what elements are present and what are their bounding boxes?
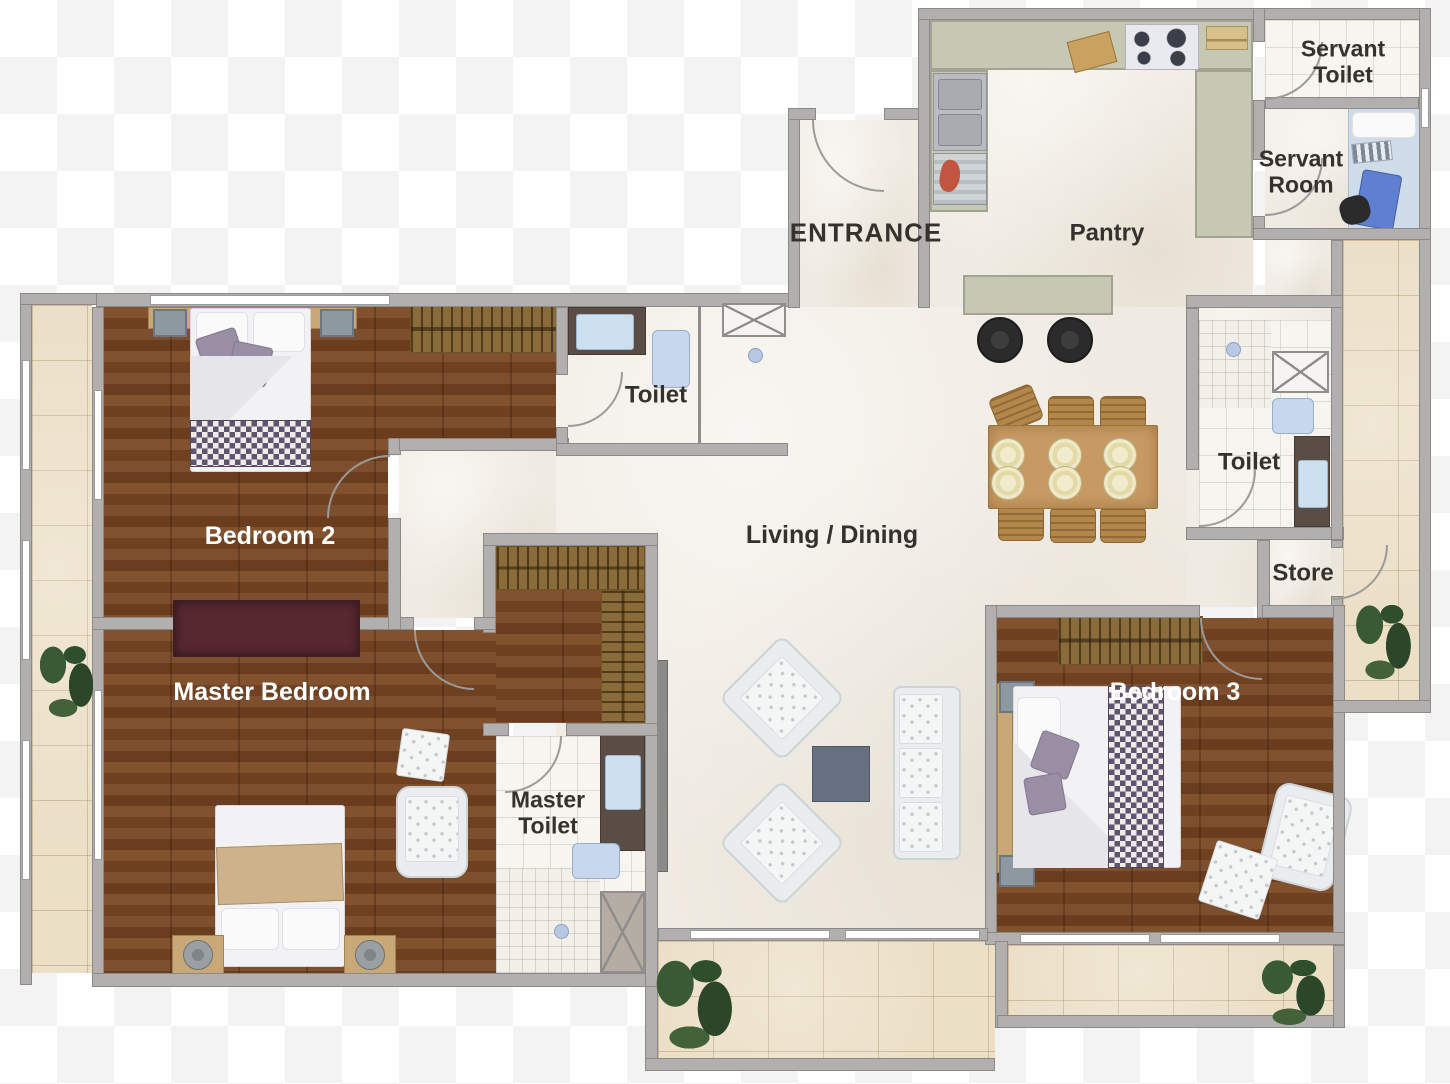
wall <box>474 617 496 630</box>
wall <box>1253 8 1265 42</box>
shaft <box>722 303 786 337</box>
dining-chair <box>1050 507 1096 543</box>
wall <box>1331 307 1343 540</box>
bar-stool <box>977 317 1023 363</box>
sofa-cushion <box>899 694 943 744</box>
bedroom3-wardrobe <box>1058 616 1203 665</box>
bedroom2-blanket <box>190 420 311 467</box>
shaft <box>1272 351 1329 393</box>
plate <box>991 466 1025 500</box>
room-label-servant-toilet: Servant Toilet <box>1291 36 1395 88</box>
wall <box>985 605 997 945</box>
speaker <box>183 940 213 970</box>
room-label-toilet-right: Toilet <box>1218 450 1280 477</box>
wall <box>1186 308 1199 470</box>
window <box>690 930 830 939</box>
kitchen-appliance <box>1206 26 1248 50</box>
shower-head <box>748 348 763 363</box>
wall <box>1333 700 1431 713</box>
washbasin <box>605 755 641 810</box>
dining-chair <box>998 505 1044 541</box>
dining-chair <box>1100 507 1146 543</box>
room-label-living-dining: Living / Dining <box>746 521 918 549</box>
toilet-fixture <box>572 843 620 879</box>
wall <box>388 518 401 630</box>
sofa-cushion <box>899 748 943 798</box>
closet-hanger-side <box>601 590 645 723</box>
bar-stool <box>1047 317 1093 363</box>
sink-basin <box>938 79 982 110</box>
pillow <box>1352 112 1416 138</box>
window <box>1160 934 1280 943</box>
closet-hanger-top <box>496 546 645 590</box>
wall <box>884 108 920 120</box>
plate <box>1103 466 1137 500</box>
sink-basin <box>938 114 982 146</box>
wall <box>918 8 1265 20</box>
toilet-fixture <box>652 330 690 388</box>
room-label-entrance: ENTRANCE <box>790 218 942 247</box>
wall <box>1253 228 1431 240</box>
room-label-store: Store <box>1272 561 1333 588</box>
window <box>150 295 390 305</box>
toilet-right-shower <box>1199 320 1271 408</box>
master-ottoman <box>396 728 450 782</box>
striped-pillow <box>1351 140 1393 164</box>
kitchen-counter-right <box>1195 70 1253 238</box>
wall <box>985 605 1200 618</box>
divider <box>698 307 701 443</box>
toilet-fixture <box>1272 398 1314 434</box>
room-label-master-toilet: Master Toilet <box>492 787 604 839</box>
nightstand <box>320 309 354 337</box>
wall <box>1186 527 1344 540</box>
room-label-master-bedroom: Master Bedroom <box>173 678 370 706</box>
wall <box>483 723 509 736</box>
plant <box>28 630 106 730</box>
duvet-fold <box>190 356 311 422</box>
wall <box>1265 97 1419 109</box>
room-label-bedroom3: Bedroom 3 <box>1110 678 1241 706</box>
master-dresser <box>173 600 360 657</box>
plant <box>1344 588 1424 693</box>
shower-panel <box>600 891 645 973</box>
window <box>1421 88 1429 128</box>
room-label-bedroom2: Bedroom 2 <box>205 522 336 550</box>
wall <box>1186 295 1343 308</box>
plant <box>1248 945 1340 1037</box>
floor-plan-page: { "title": "Apartment Floor Plan", "room… <box>0 0 1450 1084</box>
wall <box>483 533 658 546</box>
bedroom3-runner <box>1108 686 1164 868</box>
window <box>845 930 980 939</box>
wall <box>556 443 788 456</box>
wall <box>566 723 658 736</box>
plate <box>1048 466 1082 500</box>
room-label-toilet-top: Toilet <box>625 383 687 410</box>
wall <box>556 307 568 375</box>
window <box>22 740 30 880</box>
pillow <box>221 908 279 950</box>
master-toilet-shower <box>496 868 600 973</box>
shower-head <box>554 924 569 939</box>
room-label-pantry: Pantry <box>1070 221 1145 248</box>
bedroom2-wardrobe <box>410 305 558 353</box>
wall <box>1253 8 1431 20</box>
pillow <box>282 908 340 950</box>
wall <box>645 533 658 987</box>
wall <box>92 973 658 987</box>
stove <box>1125 24 1199 70</box>
wall <box>918 8 930 308</box>
window <box>1020 934 1150 943</box>
breakfast-bar <box>963 275 1113 315</box>
sofa-cushion <box>899 802 943 852</box>
master-bed-throw <box>216 843 344 905</box>
wall <box>399 438 569 451</box>
speaker <box>355 940 385 970</box>
plant <box>640 940 750 1065</box>
wall <box>788 108 800 308</box>
master-armchair-seat <box>405 796 459 862</box>
coffee-table <box>812 746 870 802</box>
nightstand <box>153 309 187 337</box>
room-label-servant-room: Servant Room <box>1249 146 1353 198</box>
window <box>94 390 102 500</box>
wall <box>788 108 816 120</box>
window <box>22 360 30 470</box>
washbasin <box>576 314 634 350</box>
wall <box>20 293 104 305</box>
washbasin <box>1298 460 1328 508</box>
shower-head <box>1226 342 1241 357</box>
cushion <box>1023 772 1067 816</box>
